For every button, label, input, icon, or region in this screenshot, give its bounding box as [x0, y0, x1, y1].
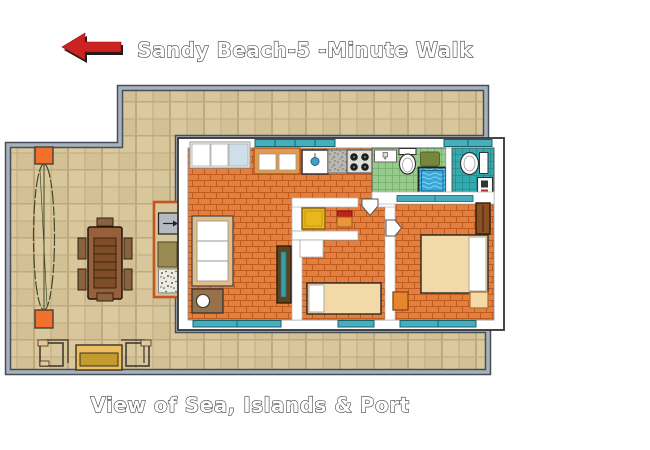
bathroom-teal [452, 148, 494, 193]
kitchen-sink [302, 150, 328, 174]
window-bedroom-top [397, 196, 473, 202]
floor-plan-canvas: Sandy Beach-5 -Minute Walk [0, 0, 650, 450]
bathroom-green [372, 148, 446, 194]
outdoor-dining-table [88, 227, 122, 299]
wall-shelf [292, 231, 358, 240]
toilet-icon [461, 153, 489, 175]
nightstand-orange [393, 292, 408, 310]
shower-tub-icon [419, 168, 447, 195]
ac-unit [159, 213, 179, 234]
pebble-pad [159, 269, 179, 293]
washbasin-icon [478, 178, 493, 193]
page-title: Sandy Beach-5 -Minute Walk [137, 38, 473, 62]
left-arrow-icon [62, 33, 123, 63]
mirror-cabinet [277, 246, 291, 303]
utility-enclosure [154, 202, 181, 297]
window-cupboard [190, 142, 250, 168]
shelf-cabinet [300, 240, 323, 257]
nightstand-cream [470, 292, 488, 308]
single-bed [307, 283, 381, 314]
wardrobe [476, 203, 490, 234]
red-chair [337, 211, 352, 227]
storage-box [158, 242, 177, 267]
kitchen-cabinet [254, 148, 300, 174]
planter-bottom [35, 310, 53, 328]
outdoor-bench [76, 345, 122, 370]
floor-plan-page: Sandy Beach-5 -Minute Walk [0, 0, 650, 450]
sofa [192, 216, 233, 286]
toilet-icon [399, 149, 416, 175]
double-bed [421, 235, 488, 293]
lamp-side-table [192, 289, 223, 313]
bath-mat [421, 152, 440, 166]
planter-top [35, 147, 53, 164]
stove [347, 150, 372, 173]
kitchen-counter [328, 150, 347, 173]
page-caption: View of Sea, Islands & Port [90, 393, 409, 417]
washbasin-icon [375, 150, 397, 162]
yellow-desk [302, 208, 325, 229]
bathroom-wall-divider [446, 148, 452, 193]
